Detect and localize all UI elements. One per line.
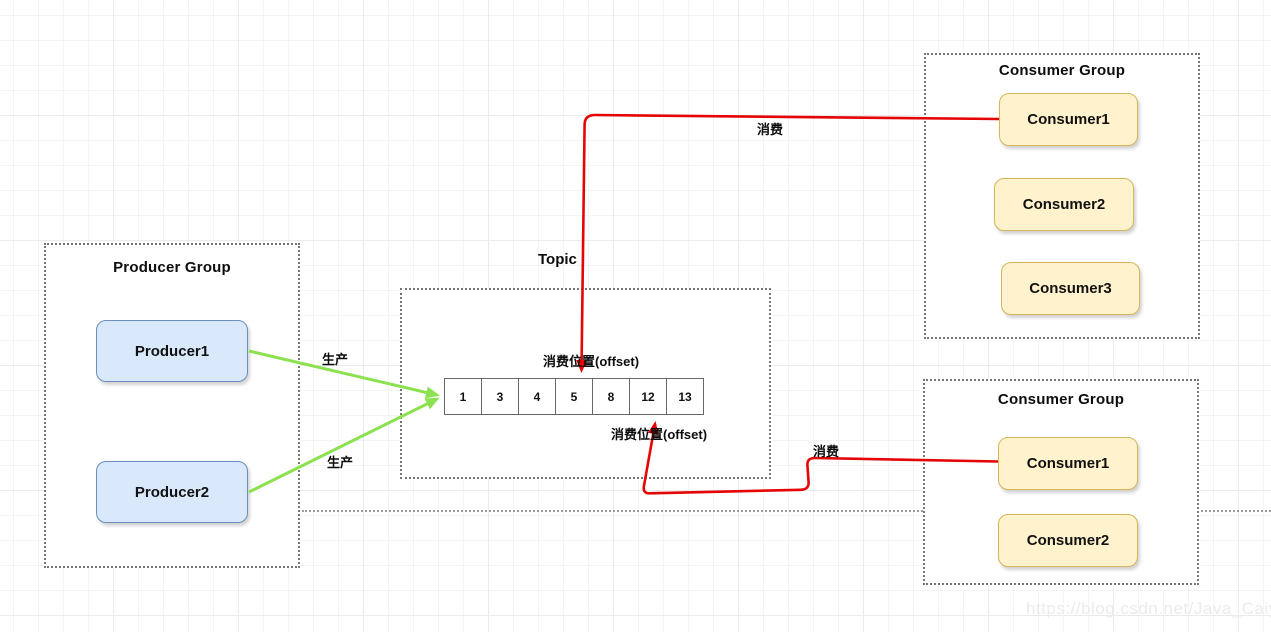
consumer-group-top-title: Consumer Group xyxy=(926,62,1198,79)
consume-label-top: 消费 xyxy=(757,119,783,138)
produce-label-top: 生产 xyxy=(322,349,348,368)
queue-cell: 3 xyxy=(481,378,519,415)
offset-label-top: 消费位置(offset) xyxy=(543,351,639,370)
topic-queue: 1 3 4 5 8 12 13 xyxy=(444,378,704,415)
consume-label-bottom: 消费 xyxy=(813,441,839,460)
consumer-group-top-consumer1-node: Consumer1 xyxy=(999,93,1138,146)
queue-cell: 13 xyxy=(666,378,704,415)
consumer-group-bottom-title: Consumer Group xyxy=(925,391,1197,408)
consumer-group-top-consumer2-node: Consumer2 xyxy=(994,178,1134,231)
produce-label-bottom: 生产 xyxy=(327,452,353,471)
consumer-group-bottom-consumer1-node: Consumer1 xyxy=(998,437,1138,490)
queue-cell: 8 xyxy=(592,378,630,415)
queue-cell: 5 xyxy=(555,378,593,415)
queue-cell: 12 xyxy=(629,378,667,415)
consumer-group-top-consumer3-node: Consumer3 xyxy=(1001,262,1140,315)
watermark: https://blog.csdn.net/Java_Caiyo xyxy=(1026,599,1271,619)
producer1-node: Producer1 xyxy=(96,320,248,382)
queue-cell: 4 xyxy=(518,378,556,415)
consumer-group-bottom-consumer2-node: Consumer2 xyxy=(998,514,1138,567)
offset-label-bottom: 消费位置(offset) xyxy=(611,424,707,443)
diagram-canvas: Producer Group Producer1 Producer2 Topic… xyxy=(0,0,1271,632)
queue-cell: 1 xyxy=(444,378,482,415)
producer-group-title: Producer Group xyxy=(46,259,298,276)
producer2-node: Producer2 xyxy=(96,461,248,523)
topic-label: Topic xyxy=(538,251,577,268)
